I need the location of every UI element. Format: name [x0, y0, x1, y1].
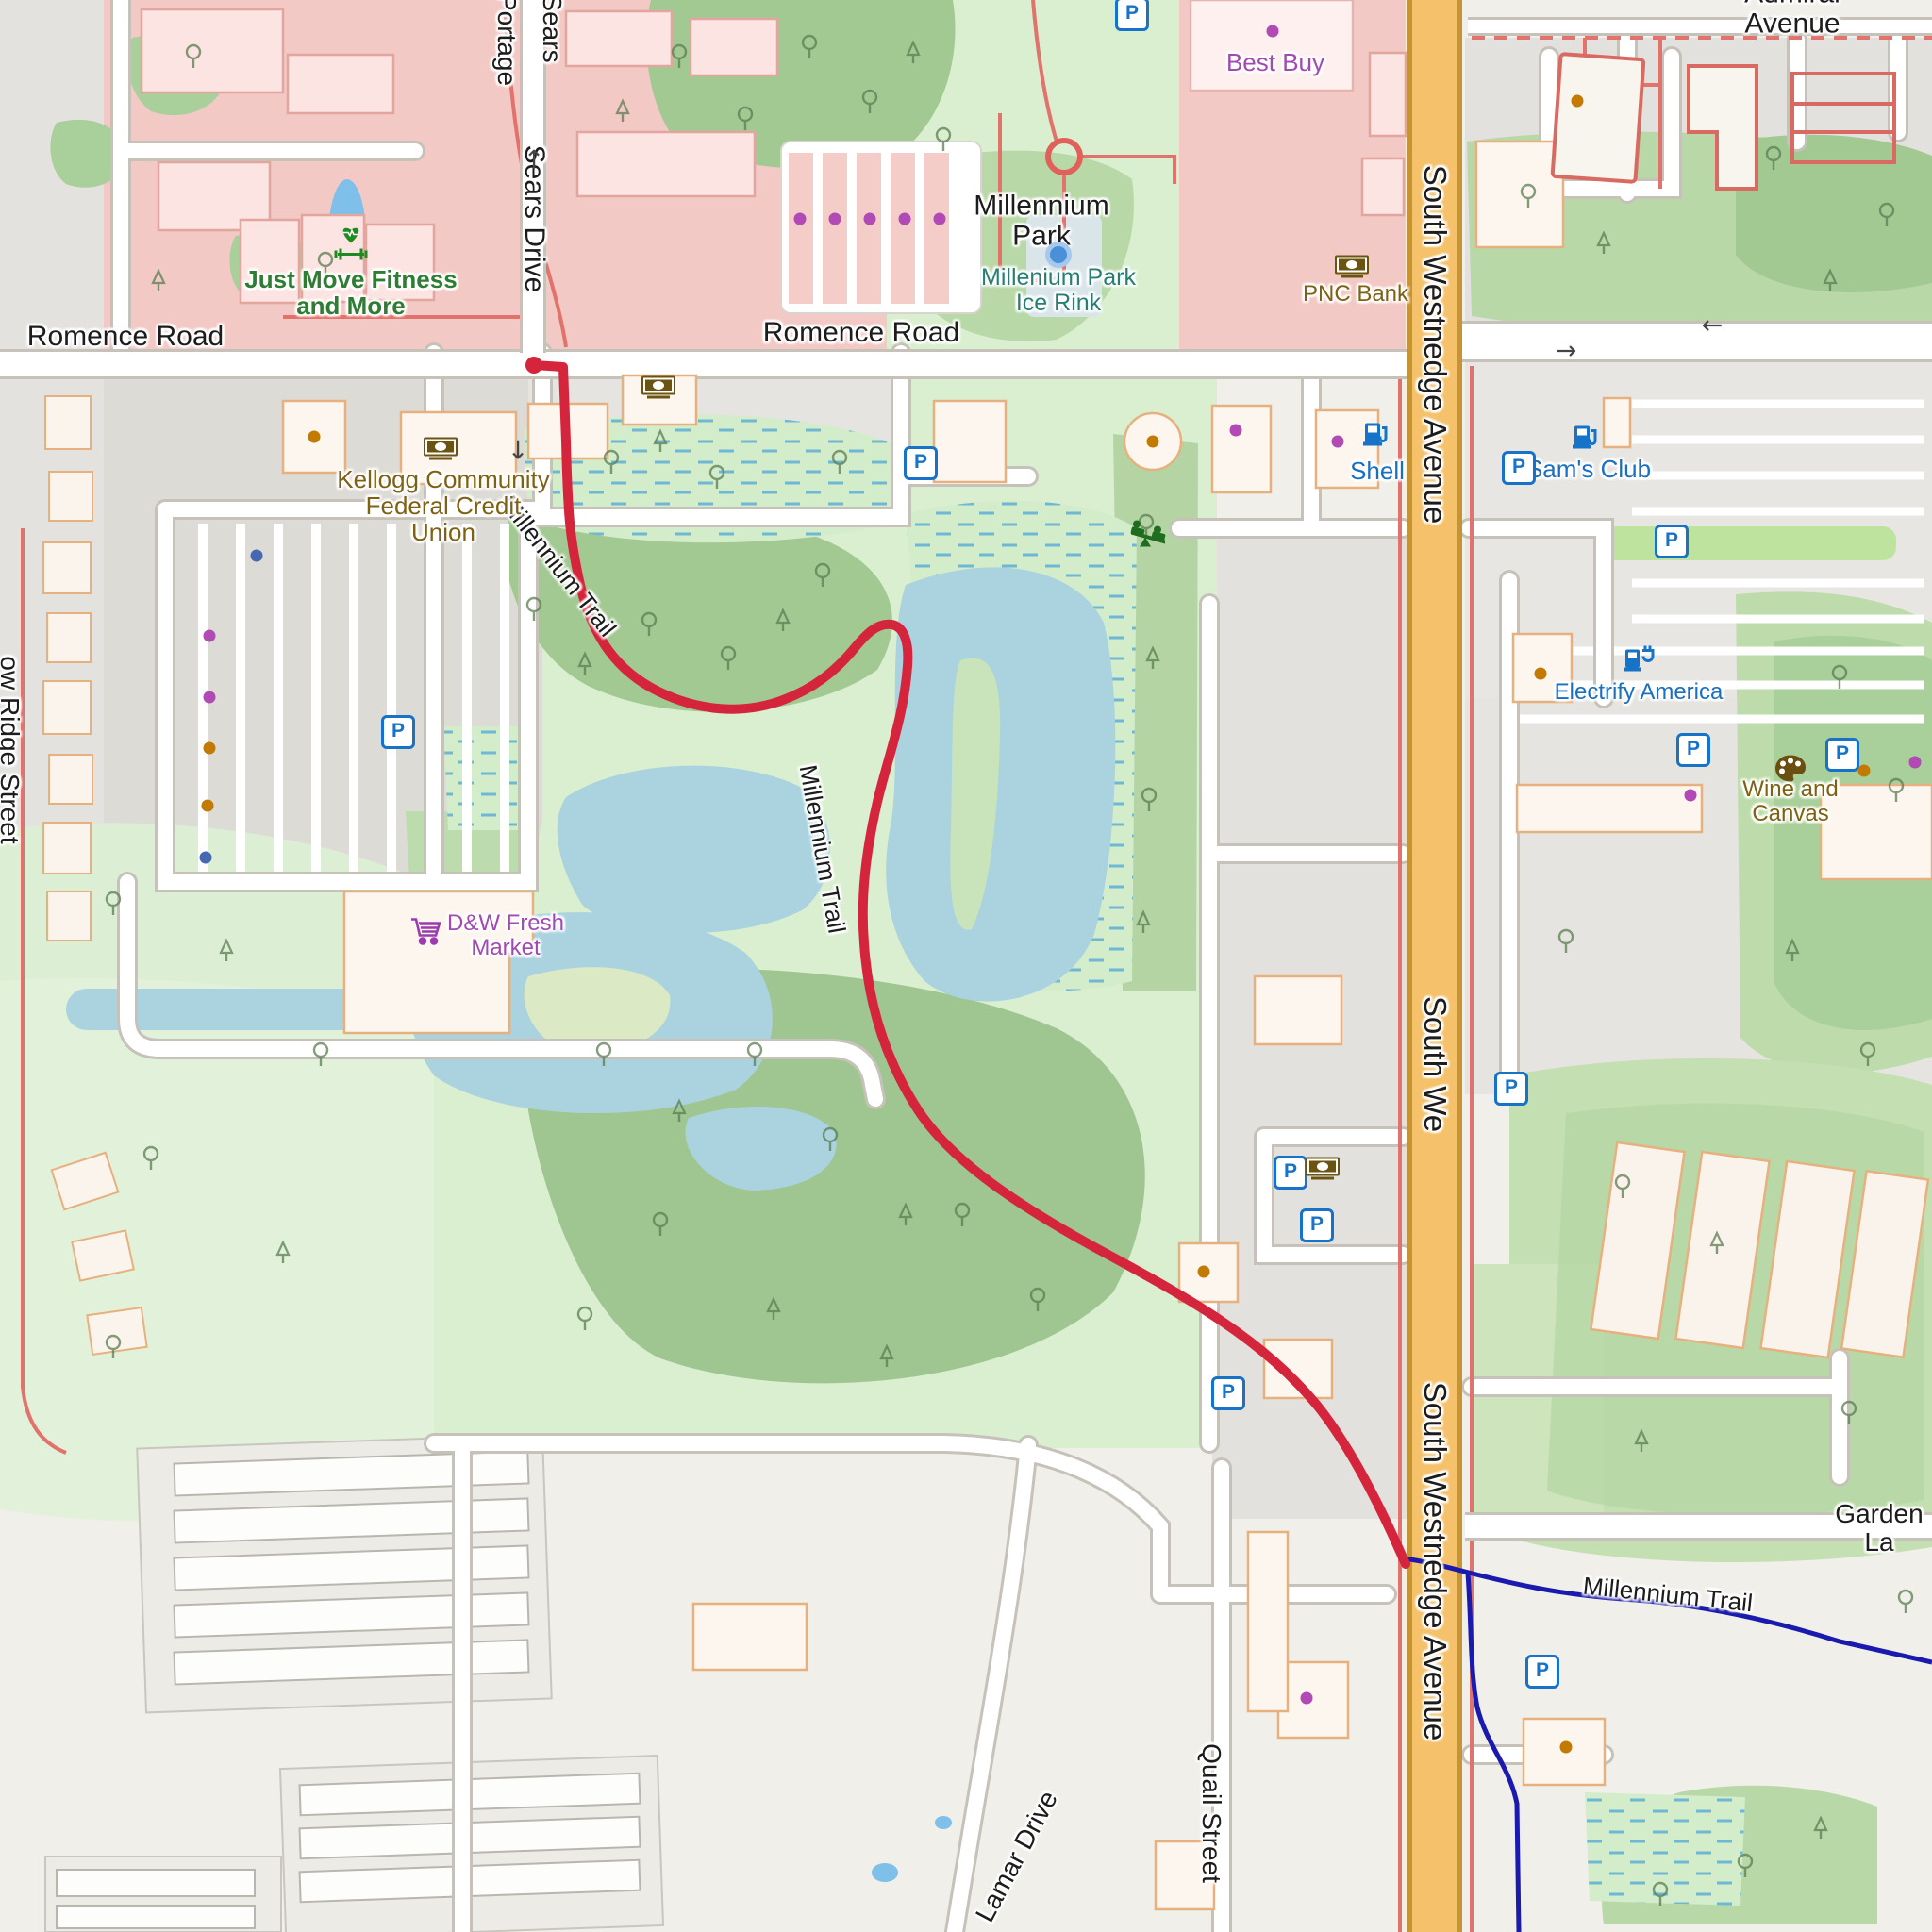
south-westnedge-mid-label: South We [1418, 996, 1452, 1132]
oneway-arrow: ↓ [508, 437, 529, 466]
poi-dot [794, 213, 807, 225]
poi-dot [1147, 436, 1159, 448]
poi-dot [1198, 1266, 1210, 1278]
bank-icon [640, 374, 677, 405]
willow-ridge-street-label: ow Ridge Street [0, 656, 24, 843]
poi-dot [1572, 95, 1584, 108]
parking-icon: P [1676, 733, 1710, 767]
quail-street-label: Quail Street [1197, 1743, 1225, 1883]
map-canvas[interactable]: Romence RoadRomence RoadSears DriveSears… [0, 0, 1932, 1932]
poi-dot [1230, 425, 1242, 437]
oneway-arrow: → [1556, 337, 1577, 366]
poi-dot [308, 431, 321, 443]
oneway-arrow: ↑ [524, 146, 545, 175]
bank-icon [1304, 1155, 1341, 1186]
garden-lane-label: Garden La [1835, 1500, 1923, 1557]
pnc-bank-label: PNC Bank [1303, 282, 1408, 307]
just-move-label: Just Move Fitness and More [244, 266, 457, 319]
ice-rink-label: Millenium Park Ice Rink [981, 265, 1136, 316]
poi-dot [1301, 1692, 1313, 1705]
dw-fresh-market-label: D&W Fresh Market [447, 911, 564, 960]
electrify-america-label: Electrify America [1555, 680, 1724, 705]
poi-dot [1560, 1741, 1573, 1754]
poi-dot [251, 550, 263, 562]
parking-icon: P [1655, 525, 1689, 558]
parking-icon: P [1211, 1376, 1245, 1410]
playground-icon [1129, 515, 1167, 552]
portage-partial-label: Portage [492, 0, 521, 86]
ev-charger-icon [1622, 642, 1656, 679]
poi-dot [1267, 25, 1279, 38]
fountain-icon [1045, 241, 1072, 268]
parking-icon: P [1274, 1156, 1307, 1190]
poi-dot [202, 800, 214, 812]
best-buy-label: Best Buy [1226, 49, 1324, 75]
bank-icon [422, 435, 459, 466]
poi-dot [899, 213, 911, 225]
parking-icon: P [1525, 1655, 1559, 1689]
poi-dot [200, 852, 212, 864]
parking-icon: P [1825, 738, 1859, 772]
parking-icon: P [904, 446, 938, 480]
parking-icon: P [1115, 0, 1149, 31]
poi-dot [204, 691, 216, 704]
poi-dot [934, 213, 946, 225]
south-westnedge-top-label: South Westnedge Avenue [1418, 165, 1452, 524]
romence-road-mid-label: Romence Road [763, 318, 959, 348]
romence-road-west-label: Romence Road [27, 322, 224, 352]
poi-dot [1685, 790, 1697, 802]
sears-partial-label: Sears [538, 0, 566, 63]
poi-dot [204, 742, 216, 755]
millennium-park-label: Millennium Park [974, 192, 1108, 253]
parking-icon: P [1494, 1072, 1528, 1106]
parking-icon: P [1502, 451, 1536, 485]
poi-dot [829, 213, 841, 225]
admiral-avenue-label: Admiral Avenue [1723, 0, 1862, 40]
cart-icon [408, 916, 444, 953]
poi-dot [1909, 757, 1922, 769]
bank-icon [1333, 253, 1371, 284]
poi-dot [1332, 436, 1344, 448]
parking-icon: P [381, 715, 415, 749]
parking-icon: P [1300, 1208, 1334, 1242]
poi-dot [864, 213, 876, 225]
fitness-icon [332, 225, 370, 271]
fuel-icon [1570, 421, 1602, 458]
oneway-arrow: ← [1702, 311, 1724, 341]
poi-dot [1535, 668, 1547, 680]
fuel-icon [1360, 418, 1392, 455]
poi-dot [1858, 765, 1871, 777]
sams-club-label: Sam's Club [1526, 456, 1651, 482]
poi-dot [204, 630, 216, 642]
kellogg-cu-label: Kellogg Community Federal Credit Union [337, 466, 549, 545]
south-westnedge-bottom-label: South Westnedge Avenue [1418, 1382, 1452, 1740]
palette-icon [1774, 754, 1807, 789]
shell-label: Shell [1350, 458, 1405, 484]
